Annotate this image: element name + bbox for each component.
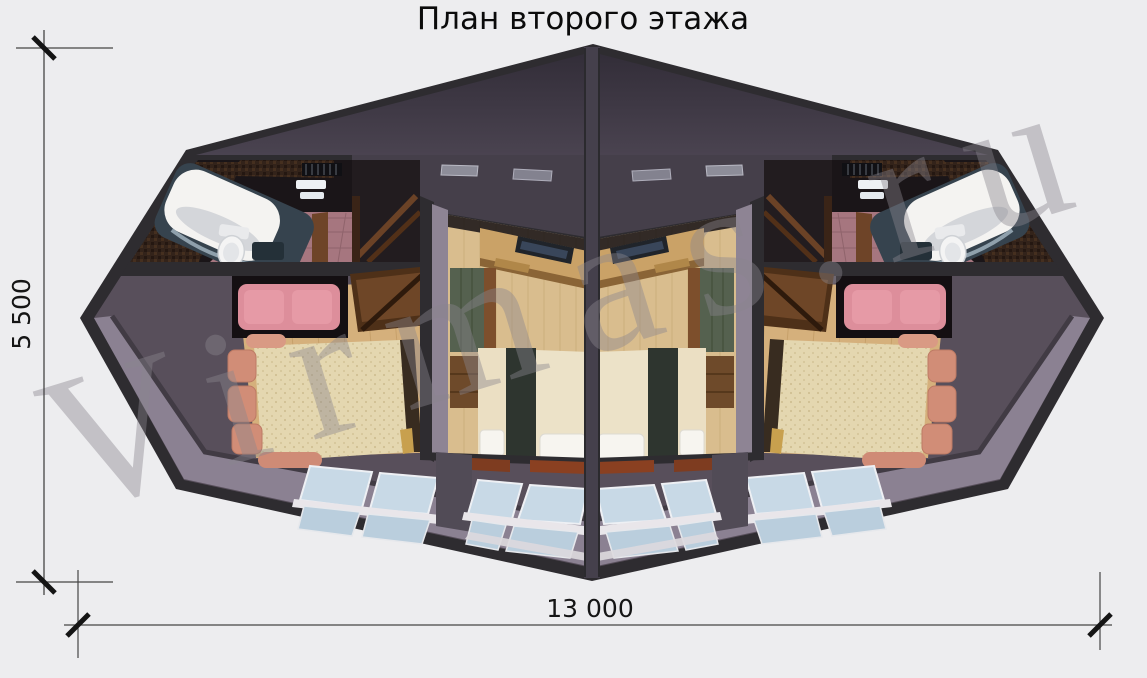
dimension-width-label: 13 000 [546,594,633,623]
page-title: План второго этажа [417,1,749,37]
floor-plan-canvas: Virmas.ru 5 500 13 000 План второго этаж… [0,0,1147,678]
dimension-height-label: 5 500 [7,278,36,350]
floor-plan-page: Virmas.ru 5 500 13 000 План второго этаж… [0,0,1147,678]
